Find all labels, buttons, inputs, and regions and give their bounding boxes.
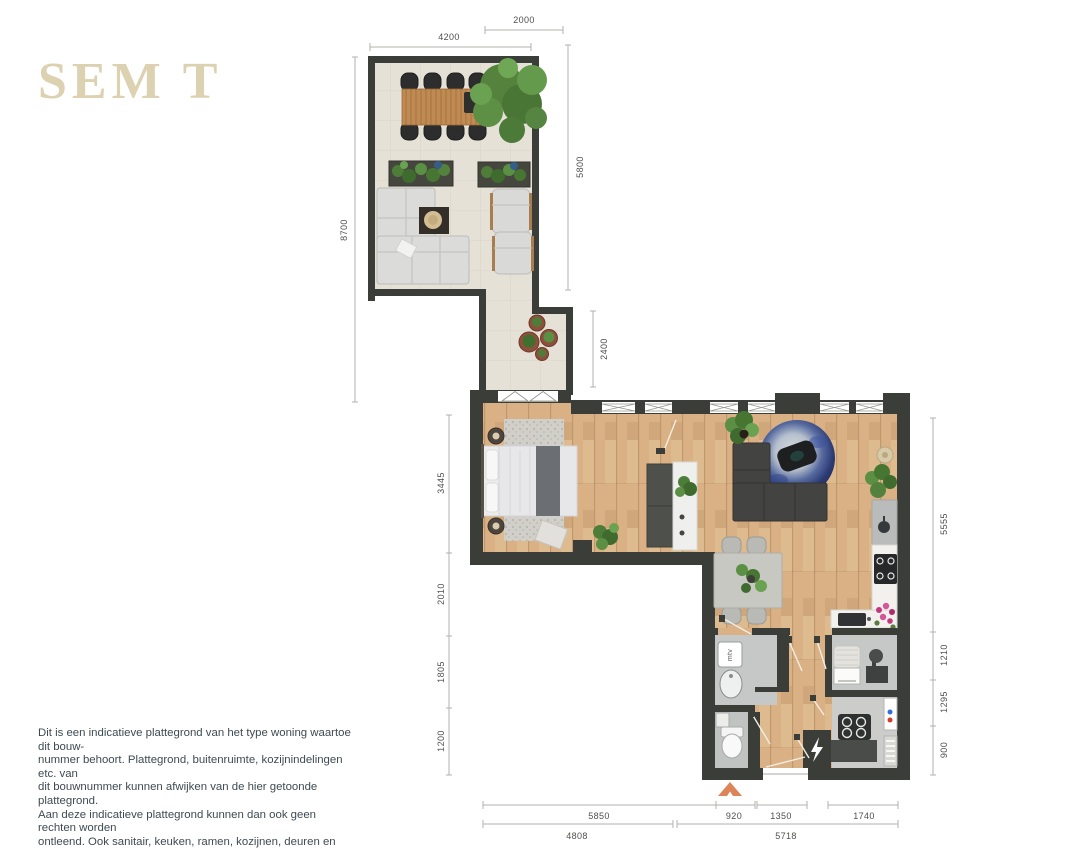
dim-label-5718: 5718: [775, 831, 797, 841]
dim-label-2010: 2010: [436, 583, 446, 605]
dim-label-5850: 5850: [588, 811, 610, 821]
kitchen-prep-sink: [878, 521, 890, 533]
dim-label-4200: 4200: [438, 32, 460, 42]
terrace-coffee-table: [419, 207, 449, 234]
dim-label-1350: 1350: [770, 811, 792, 821]
tech-room: [831, 697, 897, 768]
window: [710, 402, 738, 413]
dim-label-3445: 3445: [436, 472, 446, 494]
window: [645, 402, 672, 413]
vent-grille: [884, 736, 897, 766]
window: [602, 402, 635, 413]
laundry-room: [832, 635, 897, 690]
planter: [478, 162, 530, 187]
hot-water-dot: [888, 718, 893, 723]
meter-cupboard: [803, 730, 831, 768]
cold-water-dot: [888, 710, 893, 715]
mv-label: mtv: [727, 649, 734, 661]
cooktop: [874, 554, 897, 584]
lounge-chair: [492, 232, 534, 274]
toilet: [721, 727, 743, 758]
bed: [481, 444, 577, 518]
dim-label-4808: 4808: [566, 831, 588, 841]
dim-label-1740: 1740: [853, 811, 875, 821]
nightstand: [488, 518, 504, 534]
window: [820, 402, 849, 413]
laundry-basket: [834, 646, 860, 668]
dim-label-900: 900: [939, 742, 949, 758]
terrace: [368, 56, 573, 395]
bed-throw: [536, 446, 560, 516]
floorplan-page: SEM T Dit is een indicatieve plattegrond…: [0, 0, 1092, 849]
planter: [389, 161, 453, 186]
toilet-room: [715, 712, 748, 768]
shower-niche: [716, 713, 729, 727]
dim-label-5555: 5555: [939, 513, 949, 535]
water-connection-panel: [884, 698, 897, 730]
washer-dryer: [838, 714, 871, 740]
lounge-chair: [490, 189, 532, 233]
dim-label-920: 920: [726, 811, 742, 821]
dim-label-1210: 1210: [939, 644, 949, 666]
mv-box: mtv: [718, 642, 742, 667]
tech-counter: [831, 740, 877, 762]
apartment: mtv: [470, 390, 910, 780]
dim-label-1805: 1805: [436, 661, 446, 683]
dim-label-5800: 5800: [575, 156, 585, 178]
nightstand: [488, 428, 504, 444]
wardrobe: [647, 464, 673, 547]
dim-label-8700: 8700: [339, 219, 349, 241]
entrance-arrow-icon: [718, 782, 742, 796]
terrace-door: [498, 391, 558, 402]
washbasin: [720, 670, 742, 698]
dim-label-2000: 2000: [513, 15, 535, 25]
floor-plan: mtv: [0, 0, 1092, 849]
dim-label-1295: 1295: [939, 691, 949, 713]
washer: [834, 668, 860, 684]
dim-label-1200: 1200: [436, 730, 446, 752]
window: [748, 402, 775, 413]
window: [856, 402, 883, 413]
pendant-lamp: [877, 447, 893, 463]
console-table: [673, 462, 697, 550]
bathroom: mtv: [715, 635, 777, 705]
dim-label-2400: 2400: [599, 338, 609, 360]
